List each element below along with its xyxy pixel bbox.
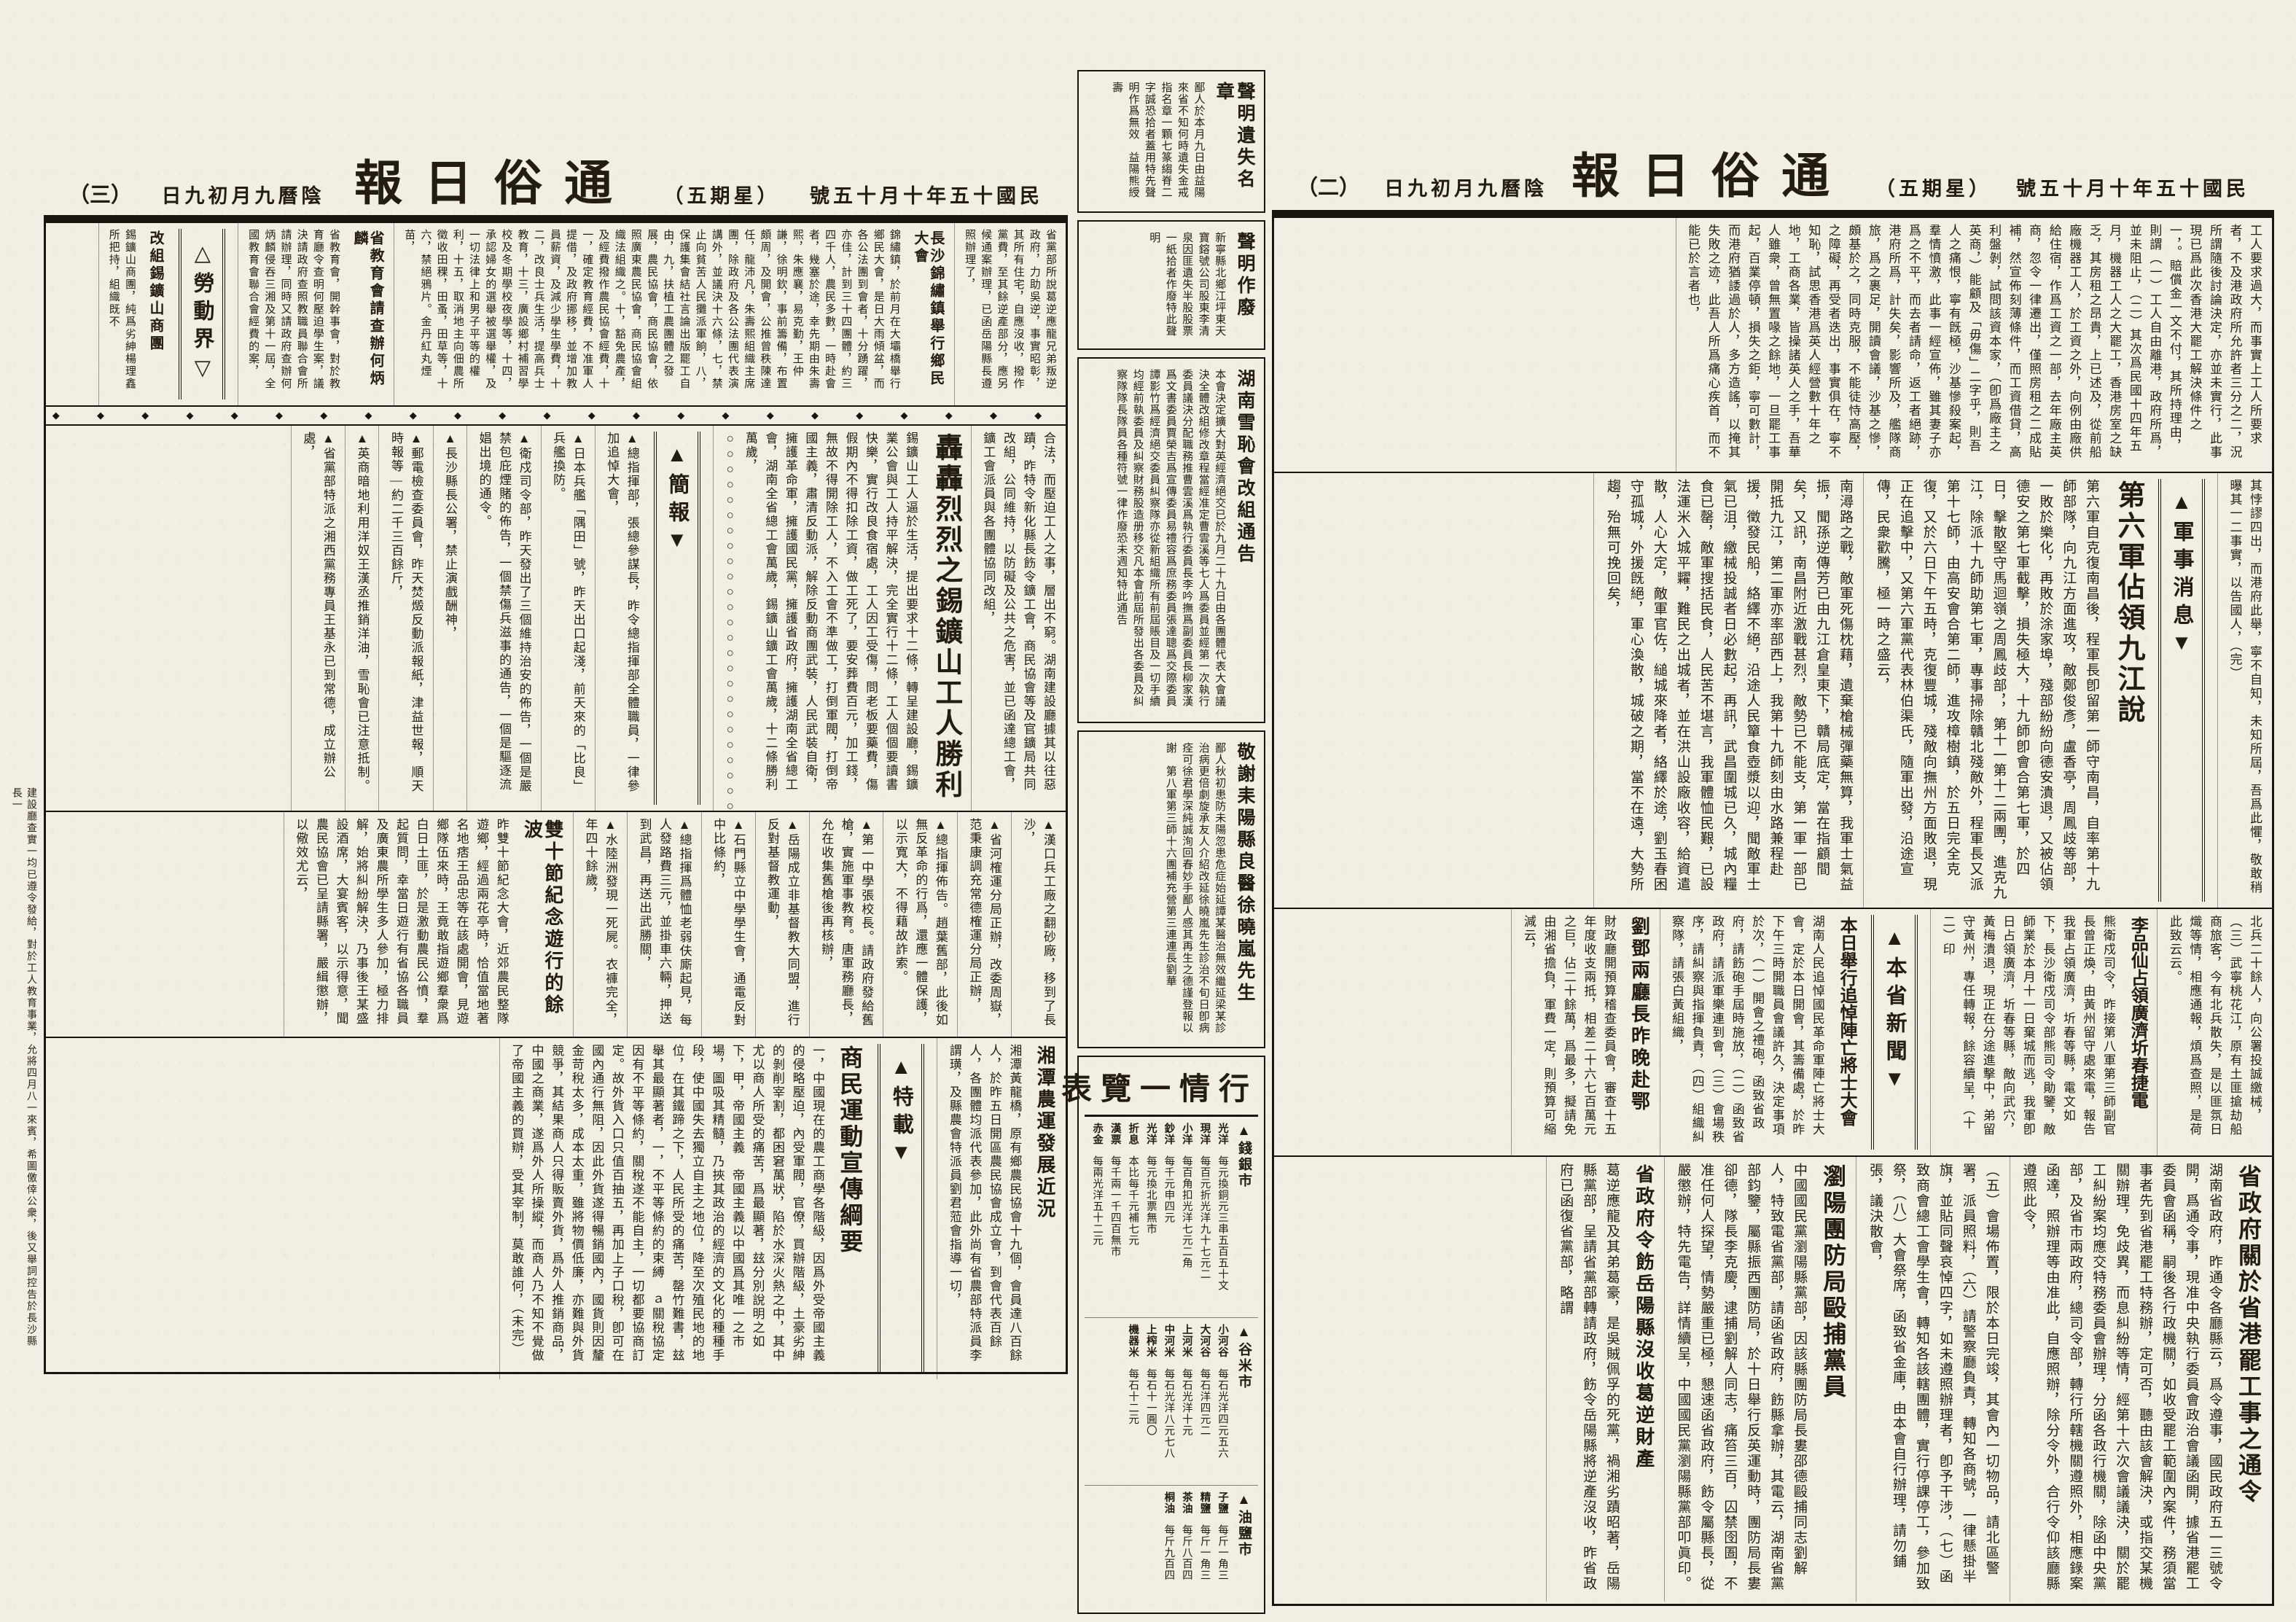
brief-text: ▲省河榷運分局正辦，改委周嶽，范秉康調充常德榷運分局正辦， bbox=[961, 812, 1007, 1037]
article-body: 合法，而壓迫工人之事，層出不窮。湖南建設廳據其以往惡蹟，昨特令新化縣長飭令鑛工會… bbox=[975, 426, 1061, 811]
price-value: 每千兩一千四百無市 bbox=[1109, 1145, 1121, 1258]
margin-note-left: 建設廳查實一均已遵令發給，對於工人教育事業，允將四月八一來賓，希圖儌倖公衆，後又… bbox=[12, 787, 38, 1356]
price-item: 子鹽 bbox=[1217, 1492, 1228, 1514]
article-yueyang-confiscation: 省政府令飭岳陽縣沒收葛逆財產 葛逆應龍及其弟葛豪，是吳賊佩孚的死黨，禍湘劣蹟昭著… bbox=[1546, 1157, 1660, 1602]
price-item: 上榨米 bbox=[1145, 1324, 1157, 1358]
brief-item: ▲總指揮佈告。趙葉舊部，此後如無反革命的行爲，還應一體保護，以示寬大，不得藉故詐… bbox=[883, 812, 953, 1037]
price-value: 每石十一圓〇 bbox=[1145, 1358, 1157, 1436]
price-item: 小洋 bbox=[1181, 1123, 1192, 1145]
price-value: 每石光洋八元七八 bbox=[1163, 1358, 1174, 1459]
price-value: 每石光洋十元 bbox=[1181, 1358, 1192, 1436]
article-body: （五）會場佈置，限於本日完竣，其會內一切物品，請北區警署，派員照料，（六）請警察… bbox=[1860, 1157, 2005, 1602]
article-body: 其悖謬四出，而港府此舉，寧不自知，未知所屆，吾爲此懼，敬敢稍曝其一二事實，以告國… bbox=[2222, 473, 2268, 908]
headline: 第六軍佔領九江說 bbox=[2106, 473, 2149, 908]
article-liudeng-departure: 劉鄧兩廳長昨晚赴鄂 財政廳開預算稽查委員會，審查十五年度收支兩抵，相差二十六七百… bbox=[1511, 909, 1655, 1155]
notice-body: 鄙人秋初患防未陽忽患危症始延譚某醫治無效繼延梁某診治病更倍劇旋承友人介紹改延徐曉… bbox=[1160, 738, 1230, 1041]
brief-text: ▲漢口兵工廠之翻砂廠，移到了長沙， bbox=[1015, 812, 1061, 1037]
band-top-left: 省黨部所說葛逆應龍兄弟叛逆政府，力助吳逆，事實昭彰，其所有住宅，自應沒收，撥作黨… bbox=[46, 223, 1066, 405]
price-value: 每元換北票無市 bbox=[1145, 1145, 1157, 1235]
price-item: 現洋 bbox=[1198, 1123, 1210, 1145]
lunar-date: 陰曆九月初九日 bbox=[162, 180, 325, 208]
price-row: 上河米每石光洋十元 bbox=[1177, 1322, 1195, 1481]
price-item: 光洋 bbox=[1145, 1123, 1157, 1145]
price-row: 漢票每千兩一千四百無市 bbox=[1106, 1120, 1124, 1314]
section-kicker-labor: △勞動界▽ bbox=[179, 229, 225, 399]
brief-item: ▲省河榷運分局正辦，改委周嶽，范秉康調充常德榷運分局正辦， bbox=[957, 812, 1007, 1037]
notice-body: 本會決定擴大對英經濟絕交已於九月二十九日由各團體代表大會議決全體改組修改章程當經… bbox=[1111, 364, 1230, 716]
article-geni-continuation: 省黨部所說葛逆應龍兄弟叛逆政府，力助吳逆，事實昭彰，其所有住宅，自應沒收，撥作黨… bbox=[954, 223, 1061, 405]
oil-salt-market-kicker: ▲油鹽市 bbox=[1231, 1489, 1257, 1604]
gutter-column: 聲明遺失名章 鄙人於本月九日由益陽來省不知何時遺失金戒指名章一顆七篆縐脊二字誠恐… bbox=[1077, 70, 1265, 1614]
brief-item: ▲衛戍司令部，昨天發出了三個維持治安的佈告，一個是嚴禁包庇煙賭的佈告，一個禁傷兵… bbox=[466, 426, 537, 811]
price-item: 機器米 bbox=[1127, 1324, 1139, 1358]
article-miners-victory: 轟轟烈烈之錫鑛山工人勝利 錫鑛山工人逼於生活，提出要求十二條，轉呈建設廳，錫鑛業… bbox=[713, 426, 967, 811]
article-body: 財政廳開預算稽查委員會，審查十五年度收支兩抵，相差二十六七百萬元之巨，佔二十餘萬… bbox=[1515, 909, 1622, 1155]
brief-text: ▲總指揮爲體恤老弱伕廝起見，每人發路費三元，並掛車六輛，押送到武昌，再送出武勝關… bbox=[631, 812, 698, 1037]
article-body: 工人要求過大，而事實上工人所要求者，不及港政府所允許者三分之二，況所謂隨後討論決… bbox=[1680, 218, 2268, 472]
price-value: 每石十二元 bbox=[1127, 1358, 1139, 1425]
notice-xuechi-reorganization: 湖南雪恥會改組通告 本會決定擴大對英經濟絕交已於九月二十九日由各團體代表大會議決… bbox=[1077, 357, 1265, 723]
price-row: 折息本比每千元補七元 bbox=[1124, 1120, 1142, 1314]
band-military-right: 其悖謬四出，而港府此舉，寧不自知，未知所屆，吾爲此懼，敬敢稍曝其一二事實，以告國… bbox=[1274, 472, 2272, 908]
article-body: 第六軍自克復南昌後，程軍長卽留第一師守南昌，自率第十九師部隊，向九江方面進攻，敵… bbox=[1867, 473, 2106, 908]
headline: 瀏陽團防局毆捕黨員 bbox=[1813, 1157, 1852, 1602]
band-province-right: 北兵二十餘人，向公署投誠繳械，（三）武寧桃花江，原有土匪搶劫船商旅客，今有北兵散… bbox=[1274, 908, 2272, 1155]
article-war-dispatches: 南潯路之戰，敵軍死傷枕藉，遺棄槍械彈藥無算，我軍士氣益振，聞孫逆傳芳已由九江倉皇… bbox=[1593, 473, 1859, 908]
headline: 雙十節紀念遊行的餘波 bbox=[515, 812, 569, 1037]
brief-text: ▲岳陽成立非基督教大同盟，進行反對基督教運動， bbox=[760, 812, 805, 1037]
article-body: 錦繡鎮，於前月在大壩橋舉行鄉民大會，是日大雨傾盆，而各公法團到會者，十分踴躍，亦… bbox=[398, 223, 905, 405]
headline: 轟轟烈烈之錫鑛山工人勝利 bbox=[924, 426, 967, 811]
price-row: 小河谷每石光洋四元五六 bbox=[1213, 1322, 1231, 1481]
ornament-divider bbox=[46, 405, 1066, 426]
price-row: 小洋每百角扣光洋七元二角 bbox=[1177, 1120, 1195, 1314]
price-item: 漢票 bbox=[1109, 1123, 1121, 1145]
price-item: 光洋 bbox=[1217, 1123, 1228, 1145]
band-lead-right: 工人要求過大，而事實上工人所要求者，不及港政府所允許者三分之二，況所謂隨後討論決… bbox=[1274, 218, 2272, 472]
brief-item: ▲省黨部特派之湘西黨務專員王基永已到常德，成立辦公處， bbox=[291, 426, 341, 811]
notice-body: 新寧縣北鄉江坪東天寶鎔號公司股東李清泉因匪遺失半股股票一紙拾者作廢特此聲明 bbox=[1144, 227, 1230, 343]
article-education-bureau: 省教育會請查辦何炳麟 省教育會，開幹事會，對於教育廳令查明何壓迫學生案，議決請政… bbox=[238, 223, 390, 405]
price-row: 精鹽每斤一角三 bbox=[1195, 1489, 1214, 1604]
price-value: 本比每千元補七元 bbox=[1127, 1145, 1139, 1246]
brief-item: ▲郵電檢查委員會，昨天焚燬反動派報紙，津益世報，順天時報等—約二千三百餘斤， bbox=[378, 426, 429, 811]
article-body: 錫鑛山工人逼於生活，提出要求十二條，轉呈建設廳，錫鑛業公會與工人持平解決，完全實… bbox=[717, 426, 924, 811]
price-row: 鈔洋每千元申四元 bbox=[1160, 1120, 1178, 1314]
article-body: 昨雙十節紀念大會，近郊農民整隊遊鄉，經過兩花亭時，恰值當地著名地痞王品忠等在該處… bbox=[288, 812, 515, 1037]
section-kicker-military-news: ▲軍事消息▼ bbox=[2158, 479, 2205, 902]
article-body: 湖南省政府，昨通令各廳縣云，爲令遵事，國民政府五一三號令開，爲通令事，現准中央執… bbox=[2014, 1157, 2229, 1602]
price-item: 茶油 bbox=[1181, 1492, 1192, 1514]
price-table-title: 行情一覽表 bbox=[1085, 1063, 1258, 1117]
price-value: 每斤八百四 bbox=[1181, 1514, 1192, 1581]
price-value: 每斤九百四 bbox=[1163, 1514, 1174, 1581]
price-item: 鈔洋 bbox=[1163, 1123, 1174, 1145]
price-value: 每百角扣光洋七元二角 bbox=[1181, 1145, 1192, 1268]
notice-headline: 聲明遺失名章 bbox=[1209, 77, 1259, 206]
article-body: 葛逆應龍及其弟葛豪，是吳賊佩孚的死黨，禍湘劣蹟昭著，岳陽縣黨部，呈請省黨部轉請政… bbox=[1550, 1157, 1626, 1602]
price-row: 中河米每石光洋八元七八 bbox=[1160, 1322, 1178, 1481]
section-kicker-province-news: ▲本省新聞▼ bbox=[1871, 915, 1918, 1150]
price-value: 每百元折光洋九十七元二 bbox=[1198, 1145, 1210, 1280]
brief-item: ▲岳陽成立非基督教大同盟，進行反對基督教運動， bbox=[755, 812, 805, 1037]
price-value: 每石洋四元二 bbox=[1198, 1358, 1210, 1436]
price-row: 茶油每斤八百四 bbox=[1177, 1489, 1195, 1604]
grain-market-section: ▲谷米市 小河谷每石光洋四元五六 大河谷每石洋四元二 上河米每石光洋十元 中河米… bbox=[1085, 1318, 1258, 1486]
price-row: 大河谷每石洋四元二 bbox=[1195, 1322, 1214, 1481]
market-price-table: 行情一覽表 ▲錢銀市 光洋每元換銅元三串五百五十文 現洋每百元折光洋九十七元二 … bbox=[1077, 1056, 1265, 1614]
price-row: 上榨米每石十一圓〇 bbox=[1141, 1322, 1160, 1481]
issue-date: 民國十五年十月十五號 bbox=[2016, 173, 2249, 201]
brief-item: ▲石門縣立中學學生會，通電反對中比條約， bbox=[701, 812, 751, 1037]
price-item: 折息 bbox=[1127, 1123, 1139, 1145]
article-liuyang-militia: 瀏陽團防局毆捕黨員 中國國民黨瀏陽縣黨部，因該縣團防局長婁邵德毆捕同志劉解人，特… bbox=[1664, 1157, 1853, 1602]
price-item: 桐油 bbox=[1163, 1492, 1174, 1514]
article-lipinxian-telegram: 李品仙占領廣濟圻春捷電 熊衛戍司令，昨接第八軍第三師副官長曾正煥，由黃州留守處來… bbox=[1930, 909, 2153, 1155]
headline: 湘潭農運發展近況 bbox=[1027, 1038, 1061, 1379]
price-row: 現洋每百元折光洋九十七元二 bbox=[1195, 1120, 1214, 1314]
price-row: 光洋每元換銅元三串五百五十文 bbox=[1213, 1120, 1231, 1314]
article-body: 熊衛戍司令，昨接第八軍第三師副官長曾正煥，由黃州留守處來電，報告我軍占領廣濟，圻… bbox=[1934, 909, 2121, 1155]
brief-item: ▲總指揮爲體恤老弱伕廝起見，每人發路費三元，並掛車六輛，押送到武昌，再送出武勝關… bbox=[627, 812, 698, 1037]
article-body: 省黨部所說葛逆應龍兄弟叛逆政府，力助吳逆，事實昭彰，其所有住宅，自應沒收，撥作黨… bbox=[958, 223, 1061, 405]
brief-item: ▲第一中學張校長。請政府發給舊槍，實施軍事教育。唐軍務廳長，允在收集舊槍後再核辦… bbox=[809, 812, 880, 1037]
article-memorial-meeting: 本日舉行追悼陣亡將士大會 湖南人民追悼國民革命軍陣亡將士大會，定於本日開會，其籌… bbox=[1660, 909, 1863, 1155]
article-strike-order: 省政府關於省港罷工事之通令 湖南省政府，昨通令各廳縣云，爲令遵事，國民政府五一三… bbox=[2010, 1157, 2268, 1602]
notice-void-share: 聲明作廢 新寧縣北鄉江坪東天寶鎔號公司股東李清泉因匪遺失半股股票一紙拾者作廢特此… bbox=[1077, 220, 1265, 350]
page-number-left: （三） bbox=[69, 178, 132, 208]
notice-headline: 敬謝耒陽縣良醫徐曉嵐先生 bbox=[1230, 738, 1258, 1041]
price-value: 每兩光洋五十二元 bbox=[1091, 1145, 1103, 1246]
price-item: 大河谷 bbox=[1198, 1324, 1210, 1358]
brief-text: ▲省黨部特派之湘西黨務專員王基永已到常德，成立辦公處， bbox=[295, 426, 341, 811]
headline: 長沙錦繡鎮舉行鄉民大會 bbox=[905, 223, 950, 405]
price-row: 桐油每斤九百四 bbox=[1160, 1489, 1178, 1604]
headline: 本日舉行追悼陣亡將士大會 bbox=[1830, 909, 1862, 1155]
oil-salt-market-section: ▲油鹽市 子鹽每斤一角三 精鹽每斤一角三 茶油每斤八百四 桐油每斤九百四 bbox=[1085, 1486, 1258, 1607]
brief-text: ▲郵電檢查委員會，昨天焚燬反動派報紙，津益世報，順天時報等—約二千三百餘斤， bbox=[383, 426, 429, 811]
headline: 改組錫鑛山商團 bbox=[141, 223, 170, 405]
brief-northern-troops-surrender: 北兵二十餘人，向公署投誠繳械，（三）武寧桃花江，原有土匪搶劫船商旅客，今有北兵散… bbox=[2157, 909, 2268, 1155]
price-value: 每元換銅元三串五百五十文 bbox=[1217, 1145, 1228, 1291]
lunar-date: 陰曆九月初九日 bbox=[1384, 173, 1547, 201]
notice-headline: 聲明作廢 bbox=[1230, 227, 1258, 343]
brief-text: ▲日本兵艦「隅田」號，昨天出口起淺，前天來的「比良」兵艦換防。 bbox=[545, 426, 591, 811]
price-row: 赤金每兩光洋五十二元 bbox=[1088, 1120, 1106, 1314]
brief-text: ▲長沙縣長公署，禁止演戲酬神， bbox=[437, 426, 464, 811]
notice-headline: 湖南雪恥會改組通告 bbox=[1230, 364, 1258, 716]
article-shangtuan: 改組錫鑛山商團 錫鑛山商團，純爲劣紳楊理鑫所把持，組織既不 bbox=[98, 223, 170, 405]
band-special-left: 湘潭農運發展近況 湘潭黃龍橋，原有鄉農民協會十九個，會員達八百餘人，於昨五日開區… bbox=[46, 1037, 1066, 1379]
band-briefs-left: ▲漢口兵工廠之翻砂廠，移到了長沙， ▲省河榷運分局正辦，改委周嶽，范秉康調充常德… bbox=[46, 811, 1066, 1037]
brief-text: ▲總指揮部，張總參謀長，昨令總指揮部全體職員，一律參加追悼大會， bbox=[599, 426, 645, 811]
article-xiangtan-peasants: 湘潭農運發展近況 湘潭黃龍橋，原有鄉農民協會十九個，會員達八百餘人，於昨五日開區… bbox=[937, 1038, 1061, 1379]
article-merchant-movement-outline: 商民運動宣傳綱要 一，中國現在的農工商學各階級，因爲外受帝國主義的侵略壓迫，內受… bbox=[499, 1038, 870, 1379]
article-body: 中國國民黨瀏陽縣黨部，因該縣團防局長婁邵德毆捕同志劉解人，特致電省黨部，請函省政… bbox=[1668, 1157, 1813, 1602]
headline: 商民運動宣傳綱要 bbox=[830, 1038, 869, 1379]
brief-item: ▲水陸洲發現一死屍。衣褲完全，年四十餘歲， bbox=[573, 812, 623, 1037]
price-item: 小河谷 bbox=[1217, 1324, 1228, 1358]
masthead-right-page: （二） 陰曆九月初九日 通俗日報 （星期五） 民國十五年十月十五號 bbox=[1272, 79, 2274, 201]
article-body: 省教育會，開幹事會，對於教育廳令查明何壓迫學生案，議決請政府查照教職員聯合會所請… bbox=[242, 223, 345, 405]
page-number-right: （二） bbox=[1297, 171, 1360, 201]
brief-item: ▲長沙縣長公署，禁止演戲酬神， bbox=[433, 426, 464, 811]
brief-item: ▲英商暗地利用洋奴王漢丞推銷洋油，雪恥會已注意抵制。 bbox=[345, 426, 375, 811]
brief-item: ▲日本兵艦「隅田」號，昨天出口起淺，前天來的「比良」兵艦換防。 bbox=[541, 426, 591, 811]
weekday: （星期五） bbox=[663, 180, 780, 208]
article-shangtuan-continued: 合法，而壓迫工人之事，層出不窮。湖南建設廳據其以往惡蹟，昨特令新化縣長飭令鑛工會… bbox=[971, 426, 1061, 811]
band-labor-left: 合法，而壓迫工人之事，層出不窮。湖南建設廳據其以往惡蹟，昨特令新化縣長飭令鑛工會… bbox=[46, 426, 1066, 811]
price-row: 子鹽每斤一角三 bbox=[1213, 1489, 1231, 1604]
weekday: （星期五） bbox=[1875, 173, 1992, 201]
section-kicker-special: ▲特載▼ bbox=[878, 1044, 924, 1373]
brief-text: ▲衛戍司令部，昨天發出了三個維持治安的佈告，一個是嚴禁包庇煙賭的佈告，一個禁傷兵… bbox=[471, 426, 537, 811]
brief-text: ▲石門縣立中學學生會，通電反對中比條約， bbox=[706, 812, 751, 1037]
section-kicker-briefs: ▲簡報▼ bbox=[654, 432, 700, 805]
headline: 省教育會請查辦何炳麟 bbox=[345, 223, 390, 405]
headline: 省政府令飭岳陽縣沒收葛逆財產 bbox=[1626, 1157, 1660, 1602]
price-value: 每石光洋四元五六 bbox=[1217, 1358, 1228, 1459]
headline: 李品仙占領廣濟圻春捷電 bbox=[2121, 909, 2153, 1155]
page-left: 省黨部所說葛逆應龍兄弟叛逆政府，力助吳逆，事實昭彰，其所有住宅，自應沒收，撥作黨… bbox=[44, 215, 1068, 1374]
brief-text: ▲英商暗地利用洋奴王漢丞推銷洋油，雪恥會已注意抵制。 bbox=[349, 426, 375, 811]
article-jiujiang-captured: 第六軍佔領九江說 第六軍自克復南昌後，程軍長卽留第一師守南昌，自率第十九師部隊，… bbox=[1863, 473, 2149, 908]
band-bottom-right: 省政府關於省港罷工事之通令 湖南省政府，昨通令各廳縣云，爲令遵事，國民政府五一三… bbox=[1274, 1155, 2272, 1602]
price-value: 每斤一角三 bbox=[1198, 1514, 1210, 1581]
price-item: 精鹽 bbox=[1198, 1492, 1210, 1514]
article-body: 一，中國現在的農工商學各階級，因爲外受帝國主義的侵略壓迫，內受軍閥，官僚，買辦階… bbox=[504, 1038, 831, 1379]
article-strike-statement-end: 其悖謬四出，而港府此舉，寧不自知，未知所屆，吾爲此懼，敬敢稍曝其一二事實，以告國… bbox=[2217, 473, 2268, 908]
notice-lost-seal: 聲明遺失名章 鄙人於本月九日由益陽來省不知何時遺失金戒指名章一顆七篆縐脊二字誠恐… bbox=[1077, 70, 1265, 213]
paper-title: 通俗日報 bbox=[354, 160, 634, 208]
price-row: 機器米每石十二元 bbox=[1124, 1322, 1142, 1481]
article-body: 南潯路之戰，敵軍死傷枕藉，遺棄槍械彈藥無算，我軍士氣益振，聞孫逆傳芳已由九江倉皇… bbox=[1598, 473, 1859, 908]
grain-market-kicker: ▲谷米市 bbox=[1231, 1322, 1257, 1481]
headline: 省政府關於省港罷工事之通令 bbox=[2229, 1157, 2268, 1602]
masthead-left-page: （三） 陰曆九月初九日 通俗日報 （星期五） 民國十五年十月十五號 bbox=[44, 86, 1068, 208]
article-double-ten-parade: 雙十節紀念遊行的餘波 昨雙十節紀念大會，近郊農民整隊遊鄉，經過兩花亭時，恰值當地… bbox=[284, 812, 569, 1037]
notice-body: 鄙人於本月九日由益陽來省不知何時遺失金戒指名章一顆七篆縐脊二字誠恐拾者蓋用特先聲… bbox=[1106, 77, 1209, 206]
article-body: 錫鑛山商團，純爲劣紳楊理鑫所把持，組織既不 bbox=[103, 223, 141, 405]
issue-date: 民國十五年十月十五號 bbox=[810, 180, 1043, 208]
page-right: 工人要求過大，而事實上工人所要求者，不及港政府所允許者三分之二，況所謂隨後討論決… bbox=[1272, 210, 2274, 1606]
notice-doctor-thanks: 敬謝耒陽縣良醫徐曉嵐先生 鄙人秋初患防未陽忽患危症始延譚某醫治無效繼延梁某診治病… bbox=[1077, 730, 1265, 1048]
brief-text: ▲水陸洲發現一死屍。衣褲完全，年四十餘歲， bbox=[577, 812, 623, 1037]
brief-item: ▲總指揮部，張總參謀長，昨令總指揮部全體職員，一律參加追悼大會， bbox=[595, 426, 645, 811]
price-item: 中河米 bbox=[1163, 1324, 1174, 1358]
article-body: 湖南人民追悼國民革命軍陣亡將士大會，定於本日開會，其籌備處，於昨下午三時開職員會… bbox=[1664, 909, 1830, 1155]
article-body: 湘潭黃龍橋，原有鄉農民協會十九個，會員達八百餘人，於昨五日開區農民協會成立會，到… bbox=[941, 1038, 1027, 1379]
article-xiangmin-dahui: 長沙錦繡鎮舉行鄉民大會 錦繡鎮，於前月在大壩橋舉行鄉民大會，是日大雨傾盆，而各公… bbox=[394, 223, 950, 405]
price-row: 光洋每元換北票無市 bbox=[1141, 1120, 1160, 1314]
price-value: 每斤一角三 bbox=[1217, 1514, 1228, 1581]
article-strike-statement: 工人要求過大，而事實上工人所要求者，不及港政府所允許者三分之二，況所謂隨後討論決… bbox=[1676, 218, 2268, 472]
money-market-kicker: ▲錢銀市 bbox=[1231, 1120, 1257, 1314]
brief-text: 北兵二十餘人，向公署投誠繳械，（三）武寧桃花江，原有土匪搶劫船商旅客，今有北兵散… bbox=[2161, 909, 2268, 1155]
brief-item: ▲漢口兵工廠之翻砂廠，移到了長沙， bbox=[1011, 812, 1061, 1037]
paper-title: 通俗日報 bbox=[1571, 153, 1851, 201]
money-market-section: ▲錢銀市 光洋每元換銅元三串五百五十文 現洋每百元折光洋九十七元二 小洋每百角扣… bbox=[1085, 1117, 1258, 1318]
brief-text: ▲第一中學張校長。請政府發給舊槍，實施軍事教育。唐軍務廳長，允在收集舊槍後再核辦… bbox=[813, 812, 880, 1037]
price-item: 赤金 bbox=[1091, 1123, 1103, 1145]
article-memorial-meeting-continued: （五）會場佈置，限於本日完竣，其會內一切物品，請北區警署，派員照料，（六）請警察… bbox=[1856, 1157, 2005, 1602]
price-item: 上河米 bbox=[1181, 1324, 1192, 1358]
brief-text: ▲總指揮佈告。趙葉舊部，此後如無反革命的行爲，還應一體保護，以示寬大，不得藉故詐… bbox=[887, 812, 953, 1037]
price-value: 每千元申四元 bbox=[1163, 1145, 1174, 1223]
headline: 劉鄧兩廳長昨晚赴鄂 bbox=[1622, 909, 1656, 1155]
